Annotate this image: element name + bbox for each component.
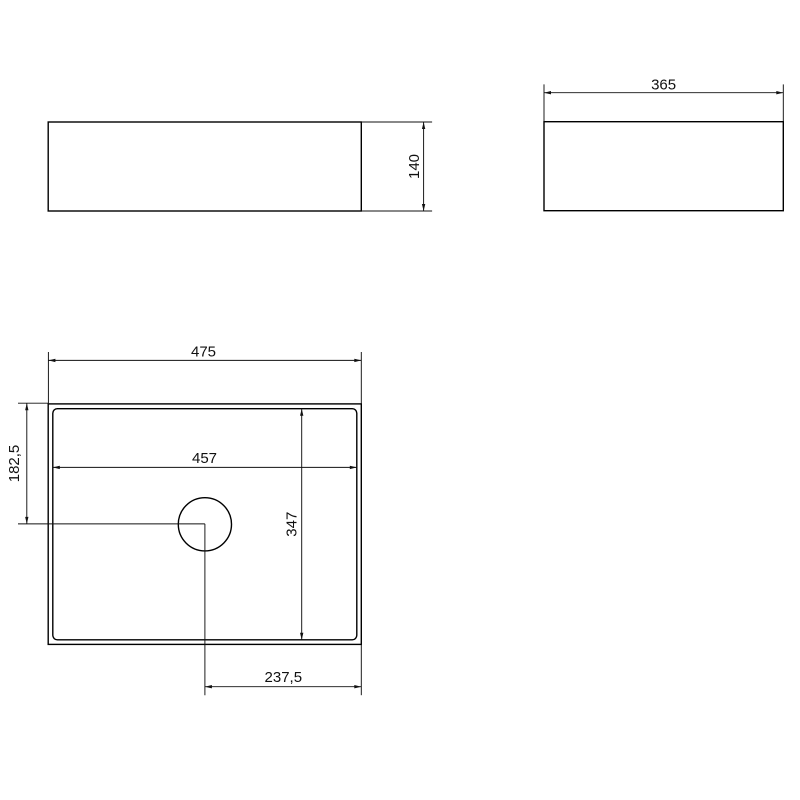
svg-text:140: 140: [406, 154, 423, 179]
svg-text:182,5: 182,5: [6, 445, 23, 483]
svg-text:457: 457: [192, 450, 217, 467]
svg-text:237,5: 237,5: [265, 669, 303, 686]
svg-text:347: 347: [284, 512, 301, 537]
svg-text:365: 365: [651, 76, 676, 93]
svg-text:475: 475: [191, 343, 216, 360]
